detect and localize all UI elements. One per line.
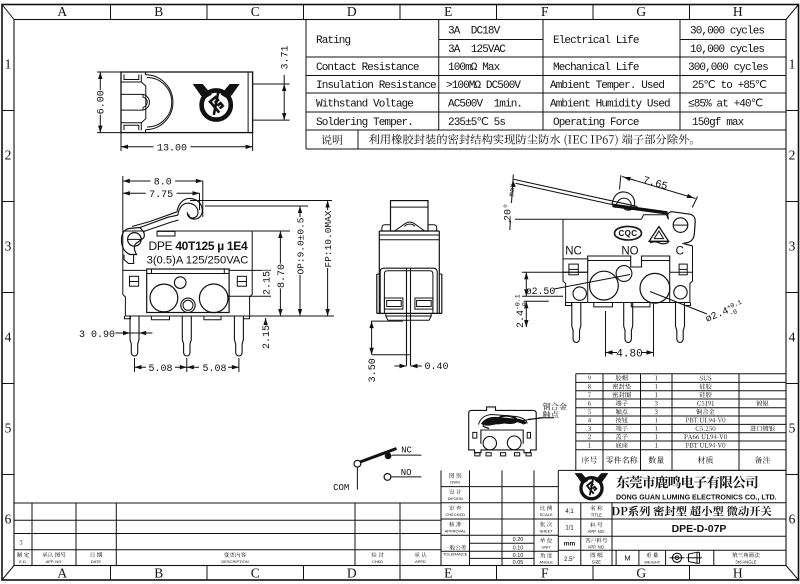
svg-text:1: 1 <box>789 57 796 72</box>
svg-text:Withstand Voltage: Withstand Voltage <box>316 99 413 111</box>
svg-text:3: 3 <box>5 239 12 254</box>
svg-text:30,000 cycles: 30,000 cycles <box>690 26 764 38</box>
svg-text:1/1: 1/1 <box>565 526 574 532</box>
svg-text:C: C <box>251 566 260 581</box>
svg-text:20°: 20° <box>503 203 515 221</box>
svg-text:>100MΩ DC500V: >100MΩ DC500V <box>446 80 521 92</box>
svg-text:NC: NC <box>565 246 582 258</box>
svg-text:2.15: 2.15 <box>262 325 273 349</box>
svg-text:B: B <box>154 566 163 581</box>
svg-text:APPD: APPD <box>415 559 426 564</box>
svg-text:3 0.90: 3 0.90 <box>79 330 115 341</box>
svg-text:CQC: CQC <box>619 229 638 238</box>
svg-text:SHEET: SHEET <box>539 528 553 533</box>
svg-text:Insulation Resistance: Insulation Resistance <box>316 80 436 92</box>
svg-text:APP. NO.: APP. NO. <box>46 559 63 564</box>
svg-text:-0.1: -0.1 <box>515 294 522 310</box>
svg-text:3.50: 3.50 <box>368 358 379 382</box>
svg-text:4: 4 <box>5 330 12 345</box>
svg-text:D: D <box>347 4 357 19</box>
svg-text:Operating Force: Operating Force <box>553 117 639 129</box>
svg-text:3(0.5)A 125/250VAC: 3(0.5)A 125/250VAC <box>147 255 249 267</box>
svg-text:10,000 cycles: 10,000 cycles <box>690 44 764 56</box>
svg-text:8.70: 8.70 <box>277 264 288 288</box>
svg-text:F: F <box>541 4 549 19</box>
svg-text:6: 6 <box>5 512 12 527</box>
svg-text:5: 5 <box>789 421 796 436</box>
svg-text:Contact Resistance: Contact Resistance <box>316 62 419 74</box>
svg-text:DWG: DWG <box>450 480 460 485</box>
svg-text:DESCRIPTION: DESCRIPTION <box>221 559 248 564</box>
svg-text:FP:10.0MAX: FP:10.0MAX <box>323 210 334 267</box>
svg-text:E: E <box>444 566 452 581</box>
svg-text:4:1: 4:1 <box>565 509 574 515</box>
svg-text:CHECKED: CHECKED <box>445 512 465 517</box>
svg-text:DPE-D-07P: DPE-D-07P <box>672 523 727 535</box>
svg-text:5.08: 5.08 <box>148 364 172 375</box>
svg-text:0.20: 0.20 <box>513 537 524 543</box>
svg-text:G: G <box>636 566 646 581</box>
svg-text:3A DC18V: 3A DC18V <box>448 26 501 38</box>
svg-text:UNIT: UNIT <box>541 544 551 549</box>
svg-text:NO: NO <box>401 468 412 478</box>
svg-text:DATE: DATE <box>91 559 102 564</box>
svg-text:B: B <box>154 4 163 19</box>
svg-text:ANGLE: ANGLE <box>539 560 553 565</box>
svg-text:mm: mm <box>564 541 576 548</box>
svg-text:A: A <box>57 4 67 19</box>
svg-text:C: C <box>676 246 684 258</box>
svg-text:DPE 40T125 µ 1E4: DPE 40T125 µ 1E4 <box>149 239 248 253</box>
svg-text:TITLE: TITLE <box>591 512 603 517</box>
svg-text:M: M <box>624 554 630 563</box>
svg-text:F: F <box>541 566 549 581</box>
svg-text:3: 3 <box>789 239 796 254</box>
svg-text:0.40: 0.40 <box>424 362 448 373</box>
svg-text:235±5℃ 5s: 235±5℃ 5s <box>448 117 505 129</box>
svg-text:25℃ to +85℃: 25℃ to +85℃ <box>692 80 767 92</box>
svg-text:2.4: 2.4 <box>516 310 527 328</box>
svg-text:0.10: 0.10 <box>513 545 524 551</box>
svg-text:Ambient Temper. Used: Ambient Temper. Used <box>550 80 664 92</box>
svg-text:3A 125VAC: 3A 125VAC <box>448 44 506 56</box>
svg-text:Soldering Temper.: Soldering Temper. <box>316 117 413 129</box>
svg-text:1: 1 <box>5 57 12 72</box>
svg-text:OP:9.0±0.5: OP:9.0±0.5 <box>295 217 306 274</box>
svg-text:4.80: 4.80 <box>616 348 642 360</box>
svg-text:SIZE: SIZE <box>592 559 602 564</box>
svg-text:5: 5 <box>5 421 12 436</box>
svg-text:APP. NO.: APP. NO. <box>588 529 606 534</box>
svg-text:H: H <box>733 4 743 19</box>
svg-text:COM: COM <box>333 483 349 493</box>
svg-text:2: 2 <box>789 148 796 163</box>
svg-text:13.00: 13.00 <box>157 143 187 154</box>
svg-text:Rating: Rating <box>316 35 351 47</box>
svg-text:5.08: 5.08 <box>202 364 226 375</box>
svg-text:A: A <box>57 566 67 581</box>
svg-text:8.0: 8.0 <box>154 178 172 189</box>
svg-text:TOLERANCE: TOLERANCE <box>443 552 468 557</box>
svg-text:max: max <box>509 182 518 197</box>
svg-text:0.05: 0.05 <box>513 560 524 566</box>
svg-text:E.D.: E.D. <box>19 559 27 564</box>
svg-text:0.10: 0.10 <box>513 553 524 559</box>
svg-text:DONG GUAN LUMING ELECTRONICS C: DONG GUAN LUMING ELECTRONICS CO., LTD. <box>616 494 777 502</box>
svg-text:2.5°: 2.5° <box>564 557 575 563</box>
svg-text:7.75: 7.75 <box>149 190 173 201</box>
svg-text:6: 6 <box>789 512 796 527</box>
svg-text:CHKD: CHKD <box>372 559 383 564</box>
svg-text:APPROVAL: APPROVAL <box>445 528 467 533</box>
svg-text:150gf max: 150gf max <box>692 117 745 129</box>
svg-text:H: H <box>733 566 743 581</box>
svg-text:-0: -0 <box>522 302 529 310</box>
svg-text:DESIGN: DESIGN <box>448 496 463 501</box>
svg-text:Electrical Life: Electrical Life <box>553 35 639 47</box>
svg-text:≤85% at +40℃: ≤85% at +40℃ <box>688 99 763 111</box>
svg-text:E: E <box>444 4 452 19</box>
svg-text:NC: NC <box>401 446 412 456</box>
svg-text:Ambient Humidity Used: Ambient Humidity Used <box>550 99 670 111</box>
svg-text:AC500V 1min.: AC500V 1min. <box>448 99 522 111</box>
svg-text:2.15: 2.15 <box>262 271 273 295</box>
svg-text:WEIGHT: WEIGHT <box>644 559 661 564</box>
svg-text:APP. NO.: APP. NO. <box>588 545 606 550</box>
svg-text:Mechanical Life: Mechanical Life <box>553 62 639 74</box>
svg-text:2: 2 <box>5 148 12 163</box>
svg-text:3rd ANGLE: 3rd ANGLE <box>735 559 756 564</box>
svg-text:4: 4 <box>789 330 796 345</box>
svg-text:ø2.50: ø2.50 <box>526 286 556 297</box>
svg-text:C: C <box>251 4 260 19</box>
svg-text:SCALE: SCALE <box>540 512 553 517</box>
svg-text:G: G <box>636 4 646 19</box>
svg-text:300,000 cycles: 300,000 cycles <box>688 62 768 74</box>
svg-text:D: D <box>347 566 357 581</box>
svg-text:100mΩ Max: 100mΩ Max <box>448 62 501 74</box>
svg-text:3.71: 3.71 <box>281 45 292 69</box>
svg-text:6.00: 6.00 <box>97 90 108 114</box>
